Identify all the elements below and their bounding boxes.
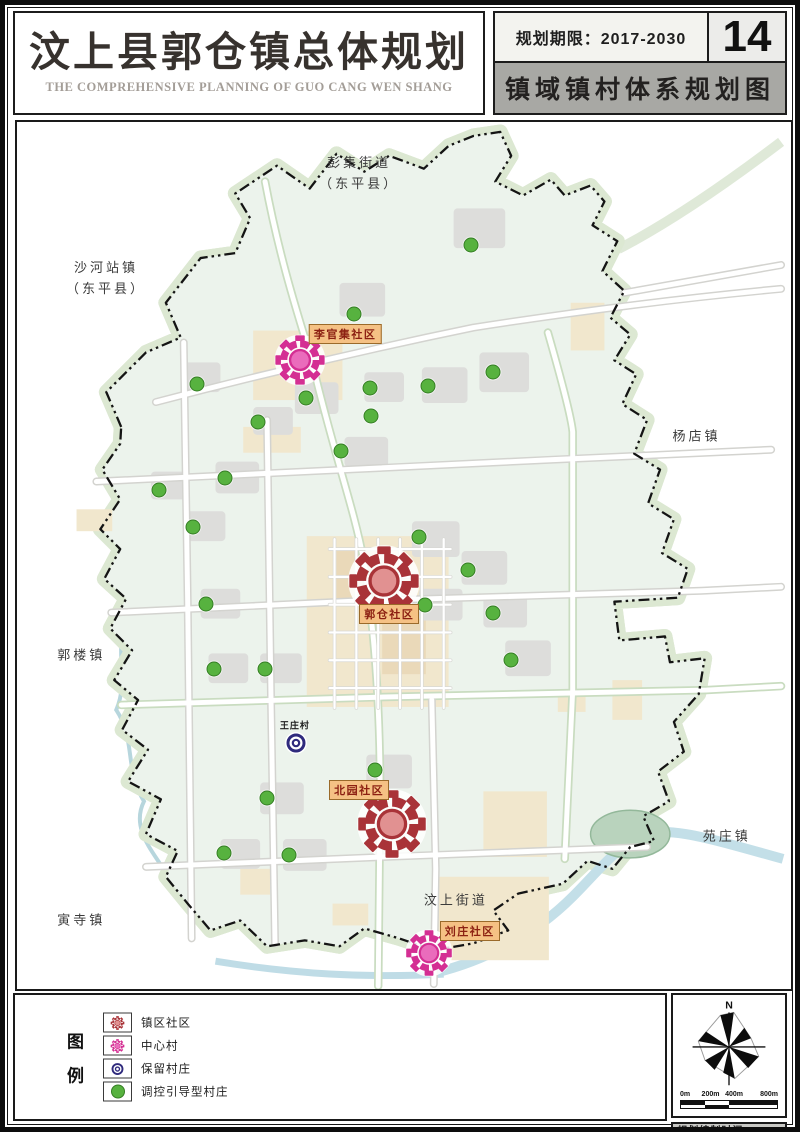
scale-bar-labels: 0m200m400m800m xyxy=(680,1091,778,1100)
scale-label-0m: 0m xyxy=(680,1091,690,1098)
scale-label-200m: 200m xyxy=(702,1091,720,1098)
guided-village-dot xyxy=(364,408,379,423)
guocang-community-label: 郭仓社区 xyxy=(359,604,419,624)
legend-title: 图 例 xyxy=(67,1028,84,1087)
header-top-row: 规划期限：2017-2030 14 xyxy=(493,11,787,63)
liguanji-community-label: 李官集社区 xyxy=(309,324,382,344)
page-title: 汶上县郭仓镇总体规划 xyxy=(29,31,469,74)
north-arrow-icon: N xyxy=(686,999,772,1091)
yinsi-town-label: 寅寺镇 xyxy=(57,911,105,932)
shahezhan-town-label: 沙河站镇（东平县） xyxy=(66,258,146,300)
sheet-number: 14 xyxy=(709,11,787,63)
guided-village-dot xyxy=(218,471,233,486)
legend-guided-village-text: 调控引导型村庄 xyxy=(141,1084,229,1100)
legend-guided-village: 调控引导型村庄 xyxy=(103,1082,229,1102)
legend-guided-village-icon xyxy=(103,1082,132,1102)
legend-center-village-icon xyxy=(103,1036,132,1056)
guided-village-dot xyxy=(334,443,349,458)
legend-retained-village: 保留村庄 xyxy=(103,1059,229,1079)
guided-village-dot xyxy=(206,662,221,677)
scale-bar: 0m200m400m800m xyxy=(680,1091,778,1109)
map-info-column: N 0m200m400m800m xyxy=(671,993,787,1121)
legend-town-community-text: 镇区社区 xyxy=(141,1015,191,1031)
planning-period: 规划期限：2017-2030 xyxy=(493,11,709,63)
wangzhuang-village-marker xyxy=(284,731,308,755)
guided-village-dot xyxy=(151,482,166,497)
guided-village-dot xyxy=(464,238,479,253)
compass-box: N 0m200m400m800m xyxy=(671,993,787,1118)
guided-village-dot xyxy=(258,662,273,677)
header-right: 规划期限：2017-2030 14 镇域镇村体系规划图 xyxy=(493,11,787,115)
guided-village-dot xyxy=(420,378,435,393)
guided-village-dot xyxy=(260,791,275,806)
guolou-town-label: 郭楼镇 xyxy=(57,646,105,667)
guided-village-dot xyxy=(299,390,314,405)
pengji-street-label: 彭集街道（东平县） xyxy=(319,153,399,195)
guided-village-dot xyxy=(486,364,501,379)
legend-town-community-icon xyxy=(103,1013,132,1033)
guided-village-dot xyxy=(347,306,362,321)
legend-title-char-1: 图 xyxy=(67,1028,84,1053)
guided-village-dot xyxy=(251,414,266,429)
legend-box: 图 例 镇区社区 中心村 保留村庄调控引导型村庄 xyxy=(13,993,667,1121)
legend-retained-village-text: 保留村庄 xyxy=(141,1061,191,1077)
beiyuan-community-label: 北园社区 xyxy=(329,780,389,800)
title-box: 汶上县郭仓镇总体规划 THE COMPREHENSIVE PLANNING OF… xyxy=(13,11,485,115)
page-subtitle: THE COMPREHENSIVE PLANNING OF GUO CANG W… xyxy=(45,80,452,95)
credit-line-1: 规划编制时间：2017 xyxy=(677,1124,780,1132)
yangdian-town-label: 杨店镇 xyxy=(673,426,721,447)
guided-village-dot xyxy=(367,762,382,777)
credit-box: 规划编制时间：2017 汶上县郭仓镇人民政府 xyxy=(671,1122,787,1132)
guided-village-dot xyxy=(198,597,213,612)
map-panel: 李官集社区 郭仓社区 北园社区 刘庄社区 王庄村彭集街道（东平县）沙河站镇（东平… xyxy=(15,120,793,991)
guided-village-dot xyxy=(461,563,476,578)
scale-label-400m: 400m xyxy=(725,1091,743,1098)
liuzhuang-community-label: 刘庄社区 xyxy=(440,921,500,941)
legend-title-char-2: 例 xyxy=(67,1062,84,1087)
guided-village-dot xyxy=(362,381,377,396)
north-label: N xyxy=(725,1000,733,1012)
guided-village-dot xyxy=(281,848,296,863)
wangzhuang-village-label: 王庄村 xyxy=(280,718,310,731)
guided-village-dot xyxy=(486,605,501,620)
map-marker-layer: 李官集社区 郭仓社区 北园社区 刘庄社区 王庄村彭集街道（东平县）沙河站镇（东平… xyxy=(17,122,791,989)
scale-label-800m: 800m xyxy=(760,1091,778,1098)
header: 汶上县郭仓镇总体规划 THE COMPREHENSIVE PLANNING OF… xyxy=(13,11,787,115)
legend-retained-village-icon xyxy=(103,1059,132,1079)
guided-village-dot xyxy=(503,652,518,667)
map-title: 镇域镇村体系规划图 xyxy=(493,63,787,115)
guided-village-dot xyxy=(217,845,232,860)
planning-sheet: 汶上县郭仓镇总体规划 THE COMPREHENSIVE PLANNING OF… xyxy=(0,0,800,1132)
legend-center-village-text: 中心村 xyxy=(141,1038,179,1054)
yuanzhuang-town-label: 苑庄镇 xyxy=(703,827,751,848)
guided-village-dot xyxy=(186,519,201,534)
scale-bar-segments xyxy=(680,1100,778,1109)
legend-center-village: 中心村 xyxy=(103,1036,229,1056)
guided-village-dot xyxy=(189,376,204,391)
wenshang-street-label: 汶上街道 xyxy=(424,891,488,912)
legend-town-community: 镇区社区 xyxy=(103,1013,229,1033)
legend-items: 镇区社区 中心村 保留村庄调控引导型村庄 xyxy=(103,1010,229,1105)
bottom-strip: 图 例 镇区社区 中心村 保留村庄调控引导型村庄 N xyxy=(13,993,787,1121)
